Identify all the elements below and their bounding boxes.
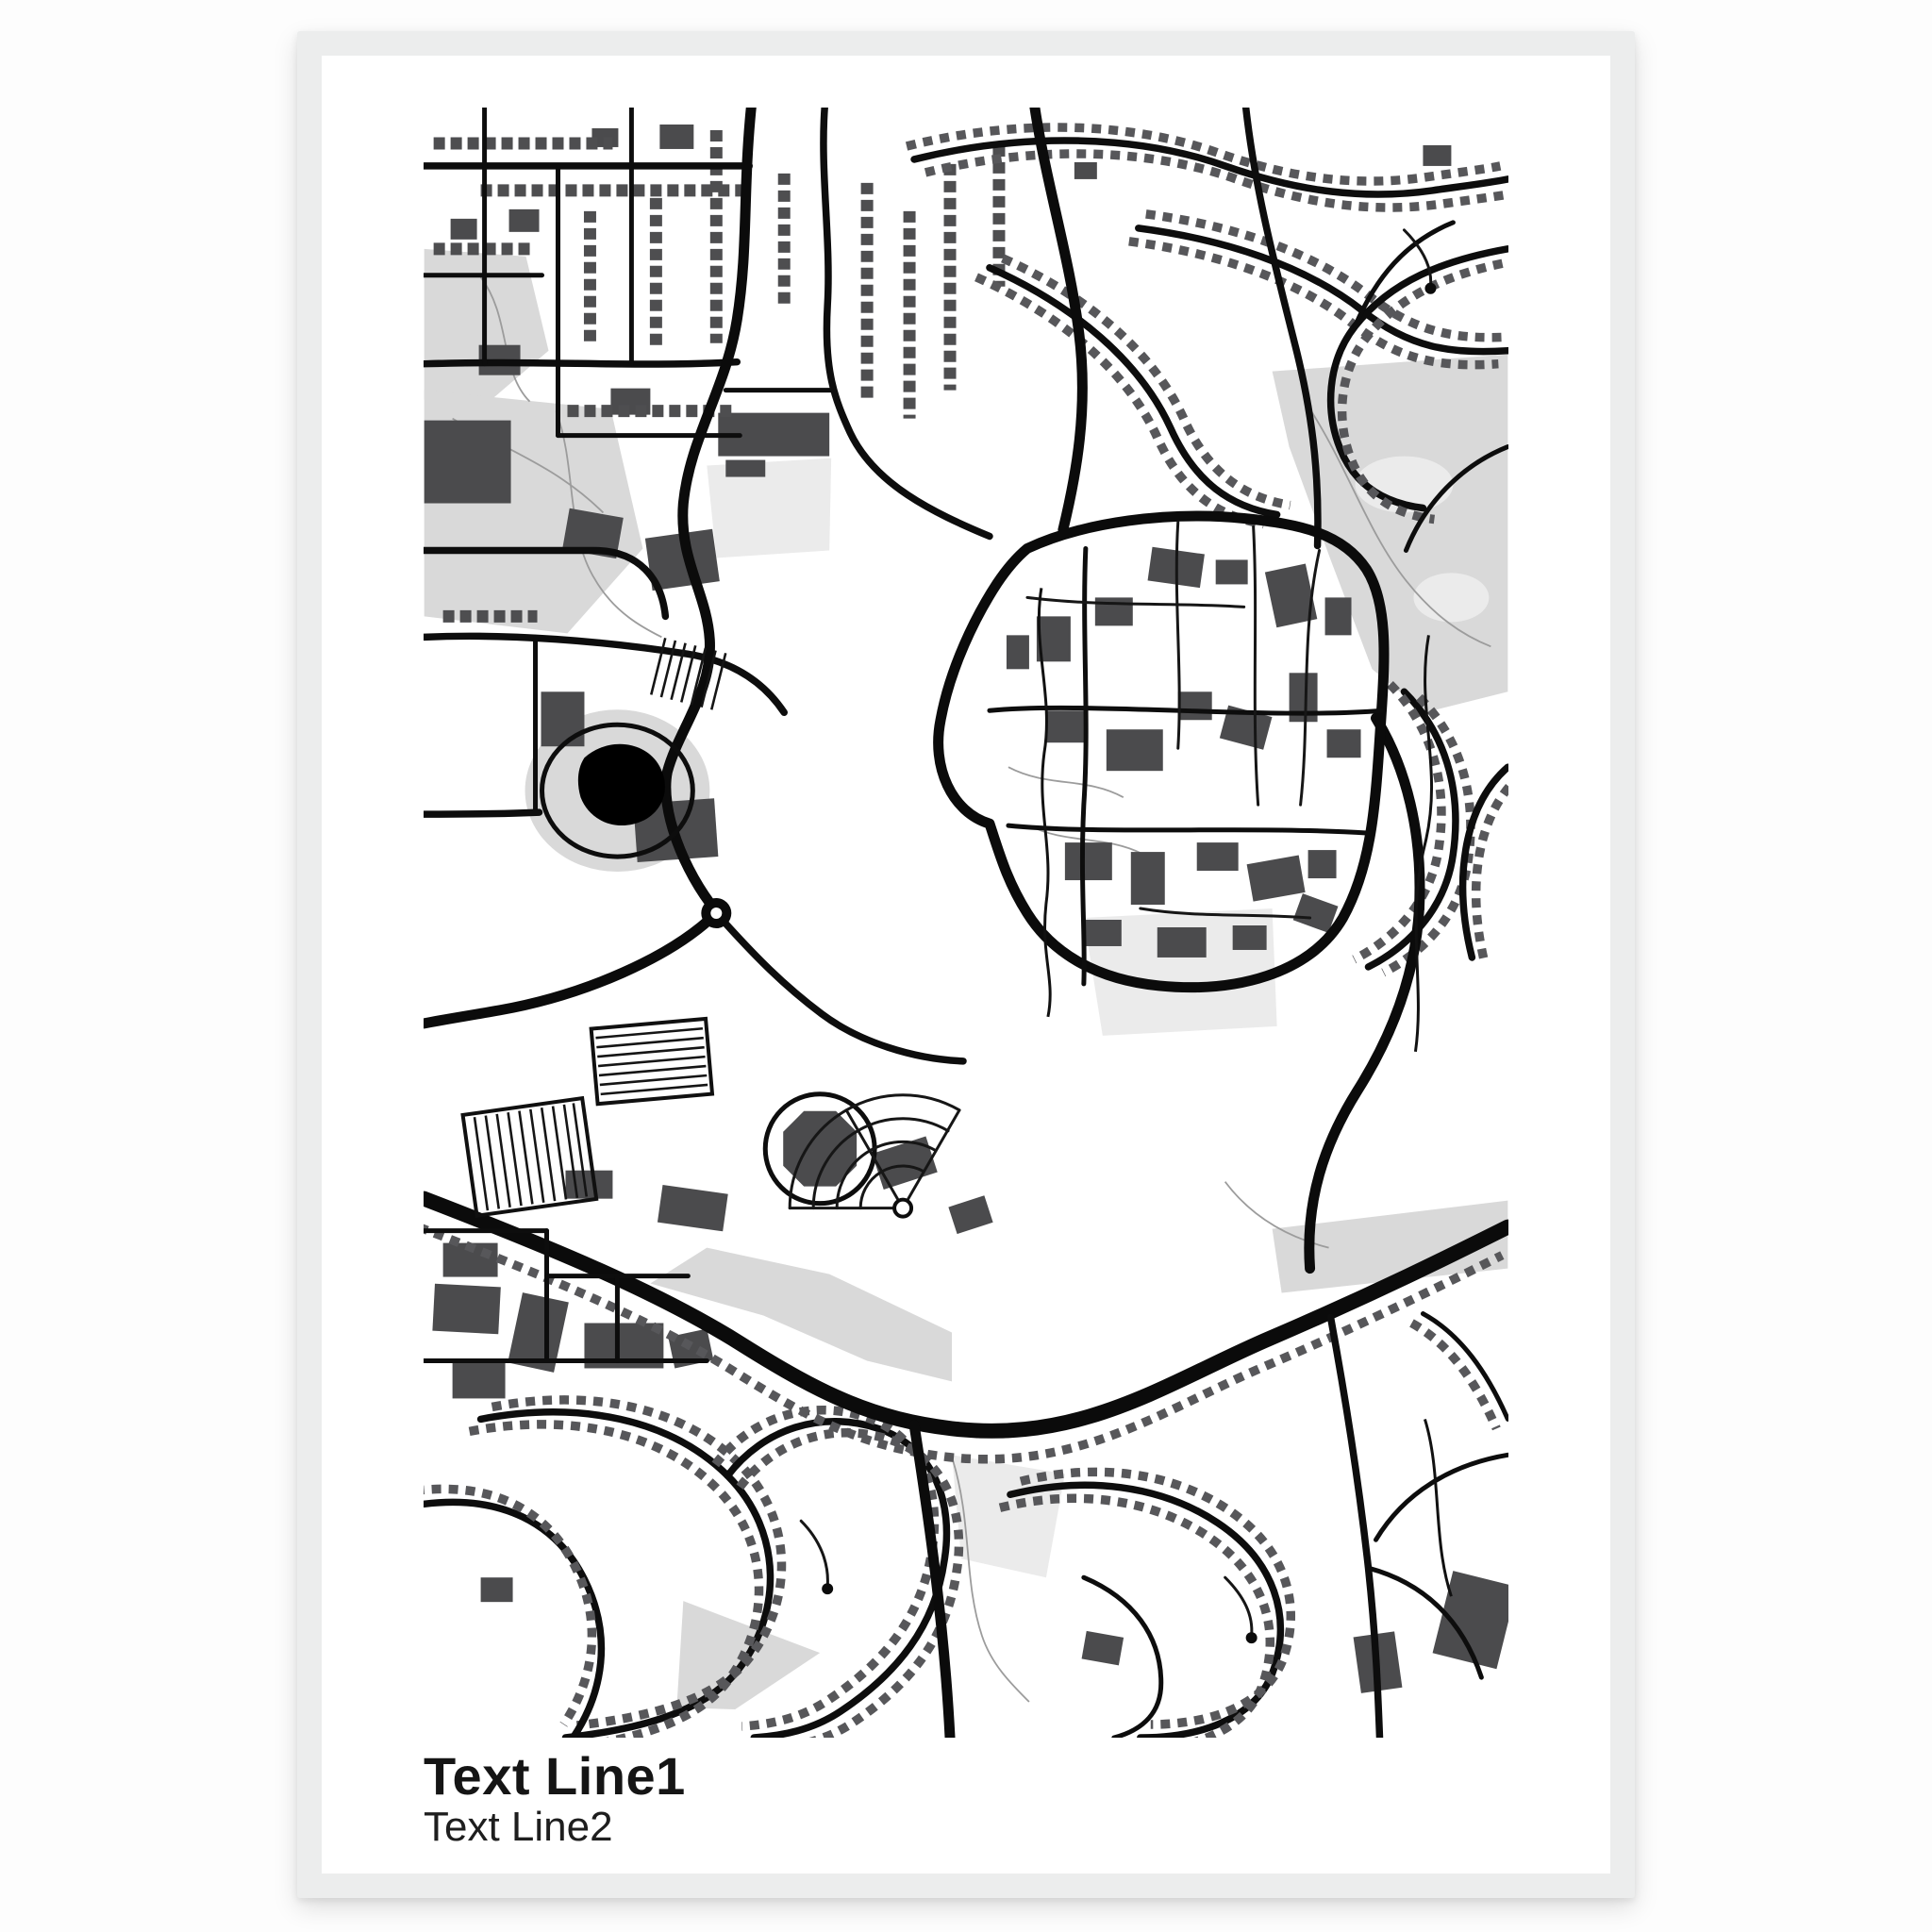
title-line2: Text Line2 [424,1806,686,1849]
city-map-svg [424,108,1508,1738]
poster-paper: Text Line1 Text Line2 [322,56,1610,1874]
city-map [424,108,1508,1738]
title-line1: Text Line1 [424,1749,686,1803]
poster-titles: Text Line1 Text Line2 [424,1749,686,1849]
scene: { "poster": { "text_line1": "Text Line1"… [0,0,1932,1932]
poster-frame: Text Line1 Text Line2 [297,31,1635,1898]
